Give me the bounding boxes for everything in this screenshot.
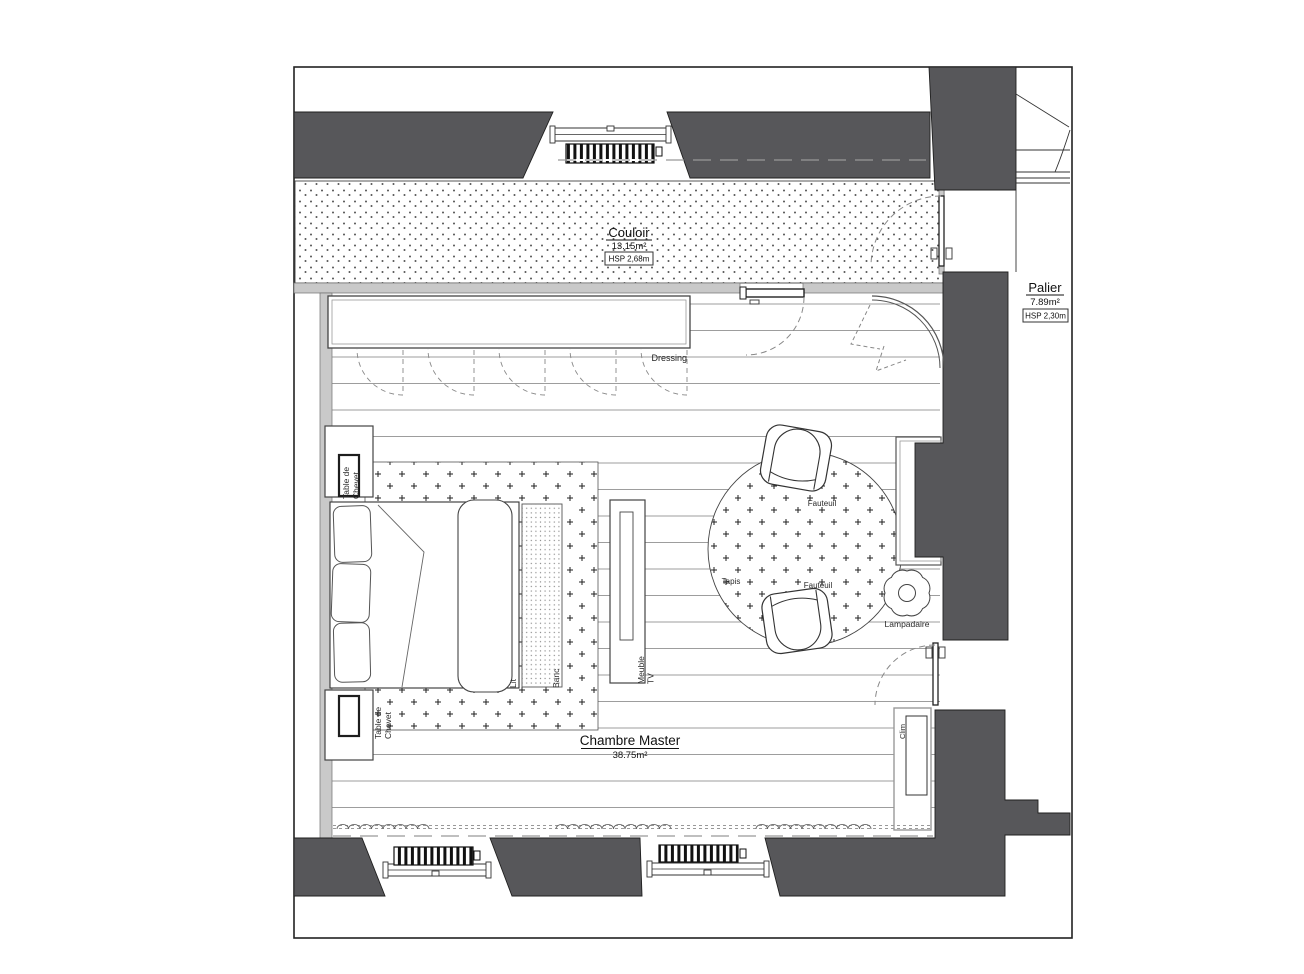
armchair-bottom-label: Fauteuil [804, 581, 833, 590]
duvet [458, 500, 512, 692]
bench-label: Banc [551, 668, 561, 688]
chambre-name: Chambre Master [580, 733, 681, 748]
floor-plan-drawing: Couloir 13.15m² HSP 2,68m Palier 7.89m² … [0, 0, 1304, 974]
bedside-table-bottom [325, 690, 373, 760]
bed-label: Lit [508, 678, 518, 688]
wall-south-mid [490, 838, 642, 896]
wall-couloir-south-right [803, 283, 944, 293]
bench [522, 504, 562, 687]
wall-north-left [294, 112, 553, 178]
floor-lamp-label: Lampadaire [885, 619, 930, 629]
couloir-hsp: HSP 2,68m [609, 255, 650, 264]
couloir-area: 13.15m² [612, 241, 647, 252]
pillow [333, 505, 372, 562]
armchair-top-label: Fauteuil [808, 499, 837, 508]
dressing-label: Dressing [651, 353, 687, 363]
window-north [550, 126, 671, 163]
wall-couloir-south-left [294, 283, 740, 293]
chambre-area: 38.75m² [613, 750, 648, 761]
palier-name: Palier [1028, 280, 1062, 295]
rug-label: Tapis [722, 577, 741, 586]
ac-unit-label: Clim [898, 724, 907, 739]
couloir-label: Couloir 13.15m² HSP 2,68m [605, 225, 653, 265]
radiator-south-right [659, 845, 738, 862]
bed [330, 500, 519, 692]
palier-hsp: HSP 2,30m [1025, 312, 1066, 321]
radiator-south-left [394, 847, 473, 865]
wall-block-top-right [929, 67, 1016, 190]
wall-north-right [667, 112, 930, 178]
palier-area: 7.89m² [1030, 297, 1060, 308]
couloir-name: Couloir [608, 225, 650, 240]
pillow [331, 563, 371, 622]
pillow [333, 623, 371, 683]
armchair-top [758, 423, 833, 494]
floor-plan-canvas: Couloir 13.15m² HSP 2,68m Palier 7.89m² … [0, 0, 1304, 974]
armchair-bottom [760, 587, 834, 656]
